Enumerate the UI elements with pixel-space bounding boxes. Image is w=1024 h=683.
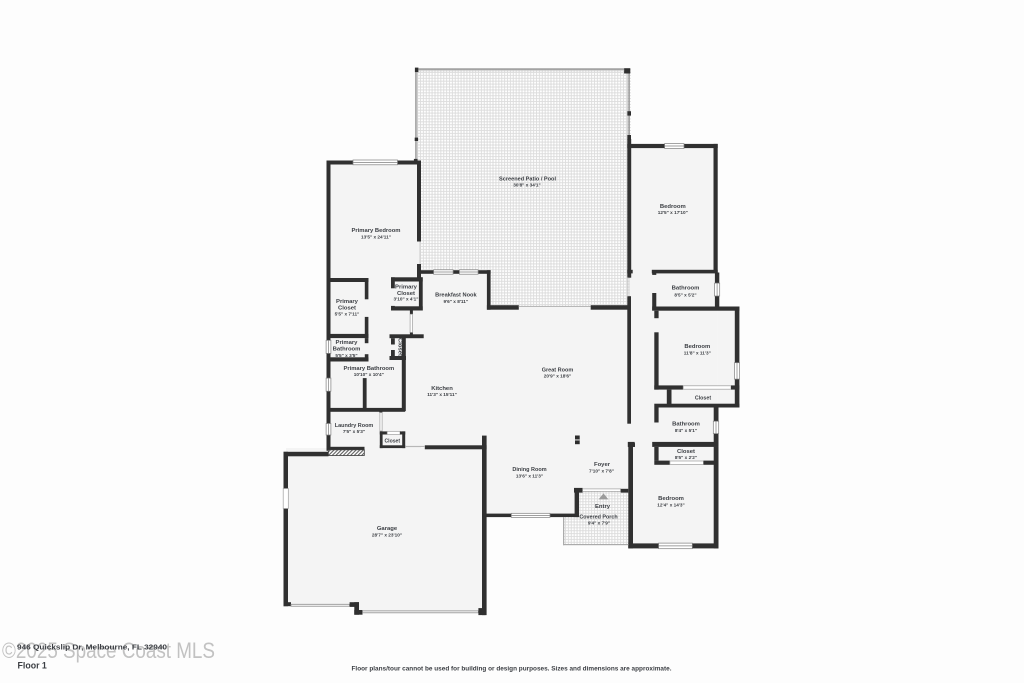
svg-text:8'5" x 2'2": 8'5" x 2'2" [675,455,697,460]
svg-text:7'10" x 7'8": 7'10" x 7'8" [589,468,614,473]
svg-text:Dining Room: Dining Room [512,467,546,473]
svg-text:Covered Porch: Covered Porch [579,514,618,520]
svg-text:7'5" x 5'3": 7'5" x 5'3" [343,429,365,434]
svg-text:9'6" x 8'11": 9'6" x 8'11" [443,299,468,304]
svg-text:12'4" x 14'3": 12'4" x 14'3" [657,503,685,508]
svg-text:12'5" x 17'10": 12'5" x 17'10" [658,210,688,215]
svg-text:Bathroom: Bathroom [672,421,700,427]
svg-text:Primary: Primary [395,284,418,290]
svg-text:9'4" x 7'9": 9'4" x 7'9" [588,520,610,525]
svg-text:Garage: Garage [377,526,398,532]
svg-text:Entry: Entry [595,504,611,510]
svg-text:Primary: Primary [336,340,359,346]
svg-text:Floor 1: Floor 1 [18,660,47,670]
svg-text:5'5" x 7'11": 5'5" x 7'11" [335,312,360,317]
svg-text:5'5" x 3'5": 5'5" x 3'5" [335,353,357,358]
svg-text:946 Quickslip Dr, Melbourne, F: 946 Quickslip Dr, Melbourne, FL 32940 [17,643,167,652]
svg-text:Closet: Closet [397,338,403,356]
svg-text:Bathroom: Bathroom [672,286,700,292]
svg-text:13'5" x 24'11": 13'5" x 24'11" [361,234,391,239]
svg-text:11'8" x 11'3": 11'8" x 11'3" [684,351,711,356]
svg-text:11'3" x 15'11": 11'3" x 15'11" [427,392,457,397]
svg-text:Bathroom: Bathroom [333,347,361,353]
svg-text:Kitchen: Kitchen [431,386,453,392]
svg-text:20'9" x 18'6": 20'9" x 18'6" [544,373,572,378]
svg-text:Foyer: Foyer [594,462,611,468]
svg-text:Bedroom: Bedroom [684,344,710,350]
svg-text:Floor plans/tour cannot be use: Floor plans/tour cannot be used for buil… [352,666,672,672]
svg-text:Closet: Closet [677,449,695,455]
svg-text:8'4" x 5'1": 8'4" x 5'1" [675,428,697,433]
svg-text:Bedroom: Bedroom [660,204,686,210]
svg-text:8'5" x 5'2": 8'5" x 5'2" [674,293,696,298]
svg-text:Primary: Primary [336,299,359,305]
svg-text:Closet: Closet [385,438,401,444]
svg-text:10'10" x 10'4": 10'10" x 10'4" [354,372,384,377]
svg-text:Primary Bedroom: Primary Bedroom [352,228,401,234]
svg-text:30'8" x 34'1": 30'8" x 34'1" [513,183,541,188]
svg-text:3'10" x 4'1": 3'10" x 4'1" [394,297,419,302]
svg-text:Closet: Closet [695,396,711,402]
svg-text:Bedroom: Bedroom [658,496,684,502]
svg-text:13'6" x 11'3": 13'6" x 11'3" [516,473,543,478]
svg-text:Screened Patio / Pool: Screened Patio / Pool [499,176,556,182]
svg-text:Closet: Closet [338,306,356,312]
svg-text:28'7" x 23'10": 28'7" x 23'10" [372,532,402,537]
svg-text:Breakfast Nook: Breakfast Nook [435,293,477,299]
